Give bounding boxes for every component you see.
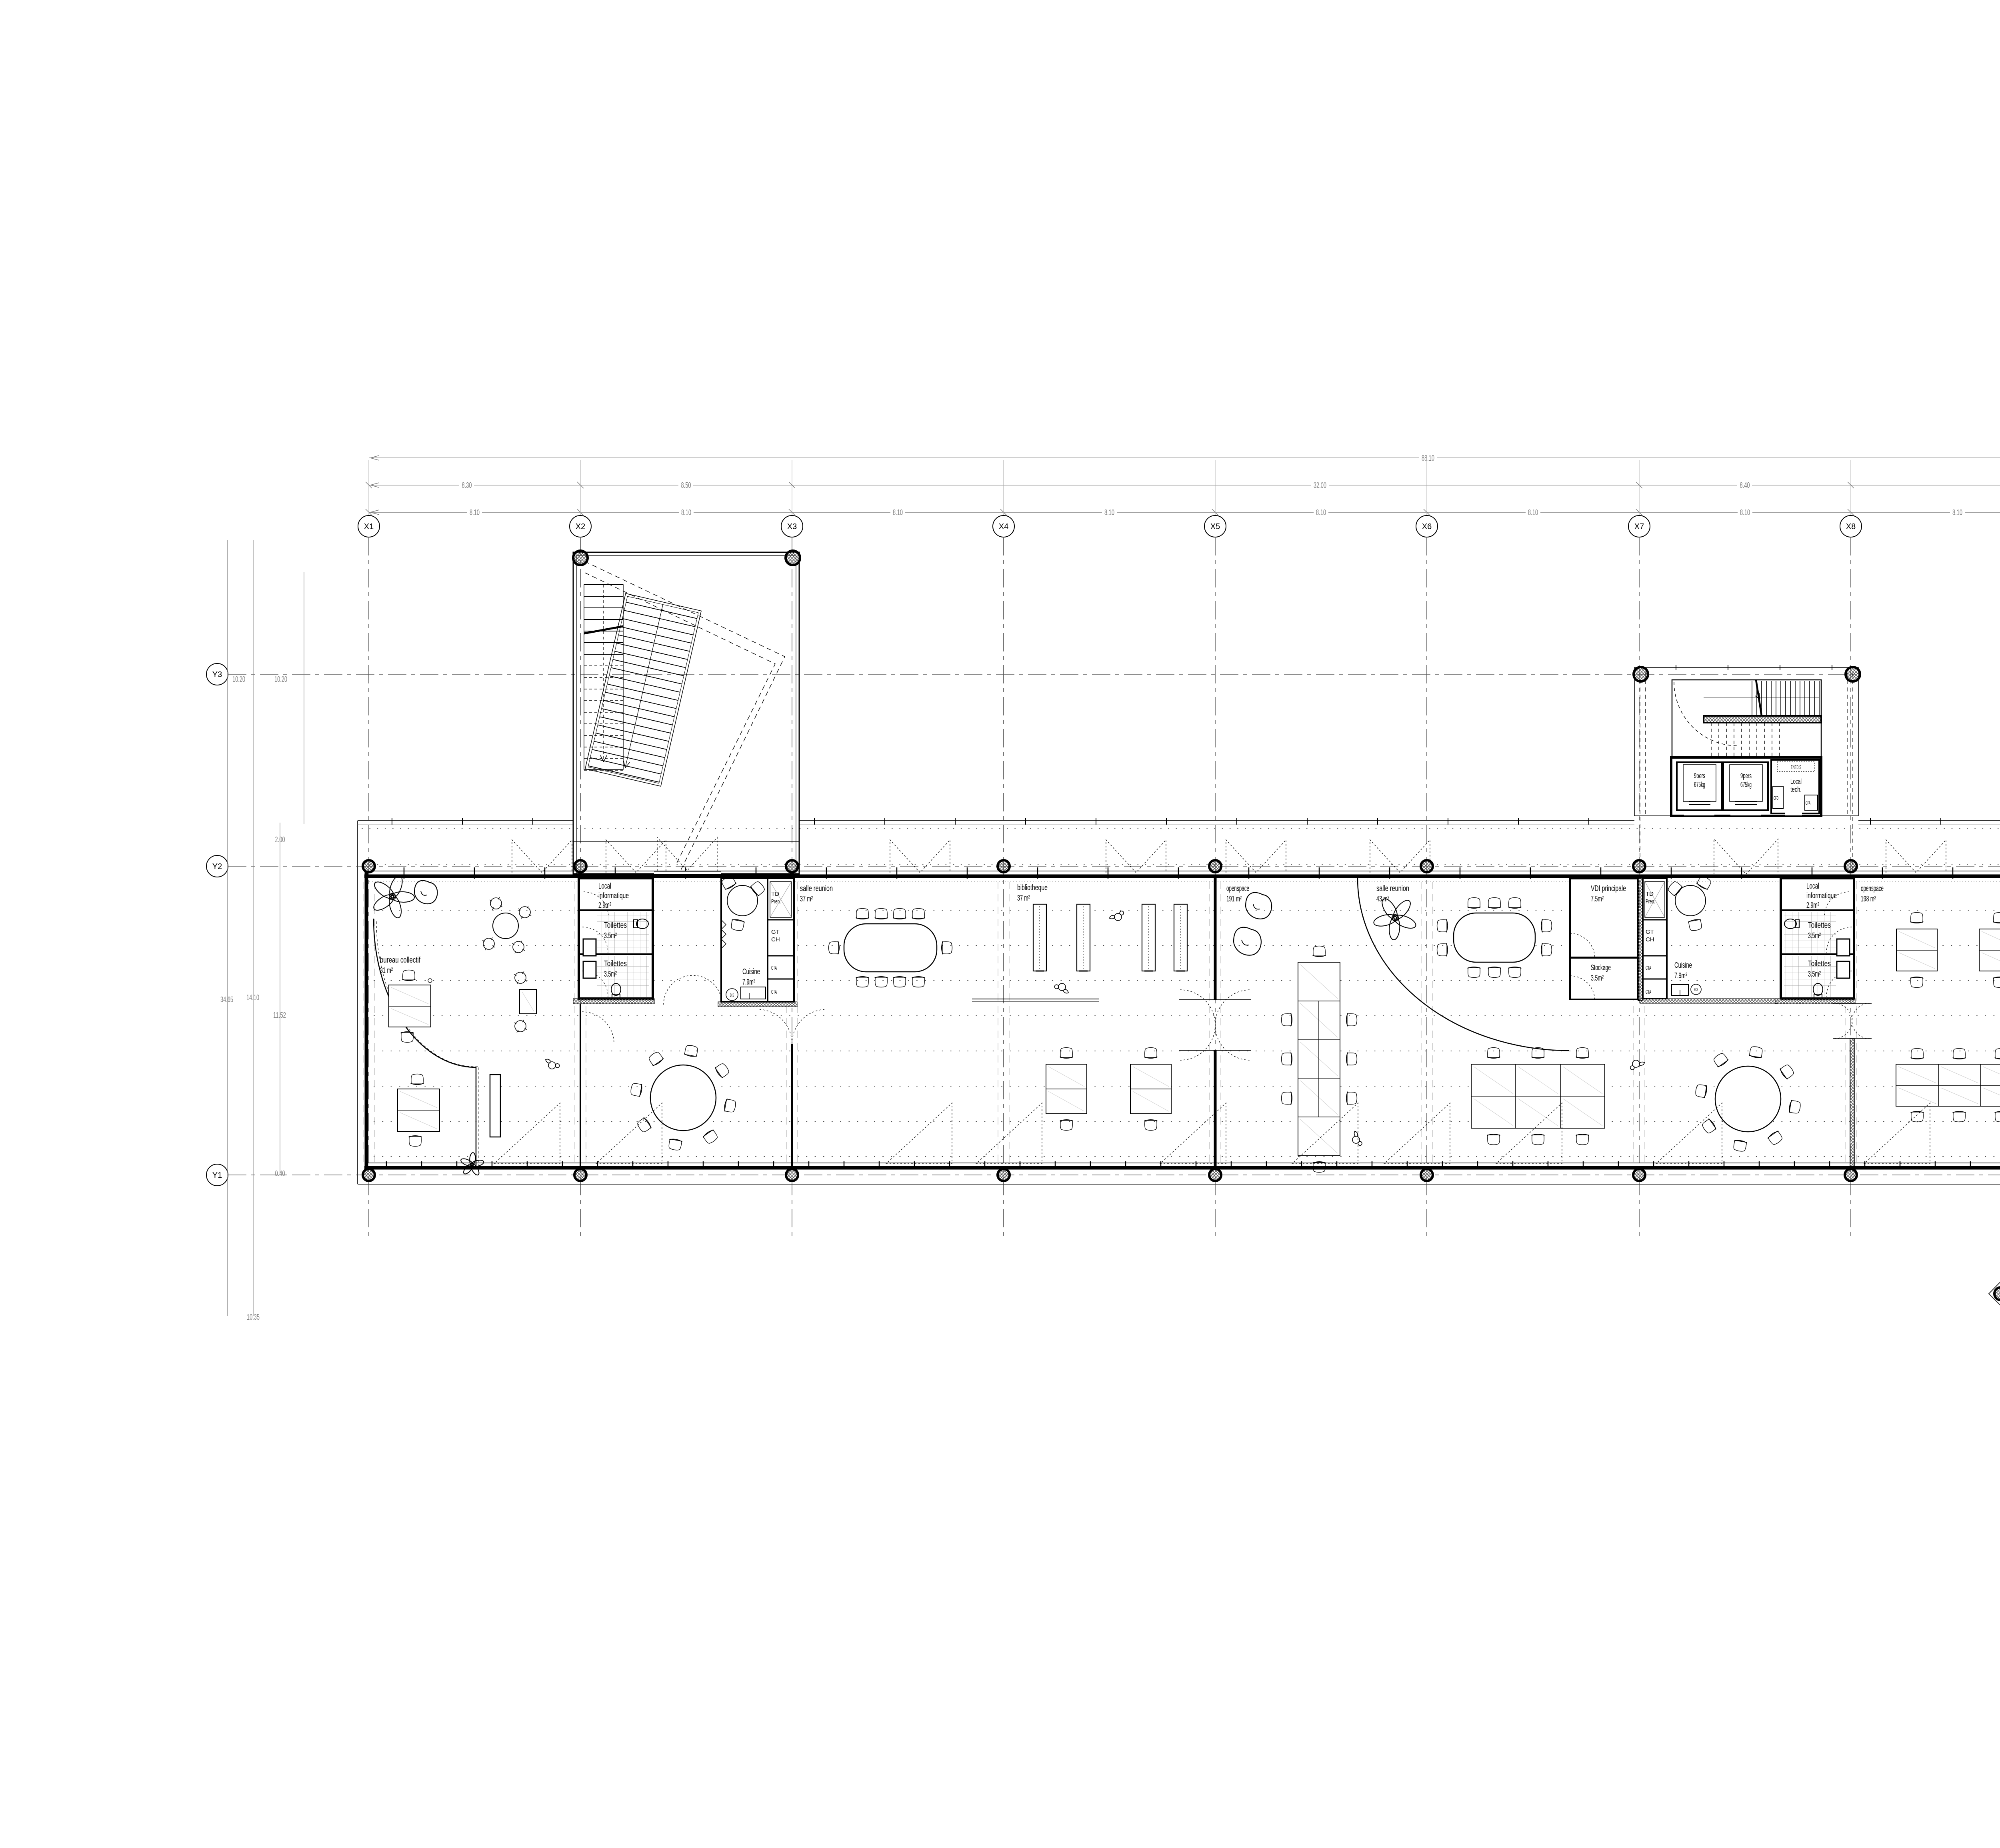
- svg-text:Local: Local: [1790, 777, 1802, 785]
- svg-text:Y1: Y1: [212, 1171, 222, 1180]
- svg-text:Stockage: Stockage: [1591, 963, 1611, 972]
- svg-text:8.10: 8.10: [681, 508, 691, 517]
- svg-text:Toilettes: Toilettes: [1808, 921, 1831, 930]
- svg-text:88.10: 88.10: [1422, 454, 1434, 463]
- svg-text:Pren.: Pren.: [1646, 898, 1655, 905]
- svg-text:CFA: CFA: [1806, 800, 1810, 806]
- svg-text:X2: X2: [576, 522, 585, 531]
- svg-text:32.00: 32.00: [1314, 481, 1326, 490]
- svg-text:Y3: Y3: [212, 670, 222, 679]
- svg-text:Toilettes: Toilettes: [1808, 959, 1831, 968]
- svg-text:8.10: 8.10: [1528, 508, 1538, 517]
- svg-text:10.20: 10.20: [274, 675, 287, 684]
- svg-text:8.50: 8.50: [681, 481, 691, 490]
- svg-text:TD: TD: [1646, 891, 1654, 897]
- svg-text:3.5m²: 3.5m²: [1808, 931, 1821, 940]
- svg-text:openspace: openspace: [1861, 884, 1884, 893]
- svg-text:CFO: CFO: [1774, 795, 1778, 801]
- svg-text:8.10: 8.10: [1316, 508, 1326, 517]
- svg-text:9pers: 9pers: [1694, 772, 1705, 780]
- svg-text:Pren.: Pren.: [771, 898, 781, 905]
- svg-text:37 m²: 37 m²: [800, 895, 813, 903]
- svg-text:675kg: 675kg: [1740, 781, 1752, 789]
- svg-text:X7: X7: [1634, 522, 1644, 531]
- svg-text:GT: GT: [1646, 929, 1654, 935]
- svg-text:14.10: 14.10: [246, 993, 259, 1002]
- svg-text:8.30: 8.30: [462, 481, 472, 490]
- svg-text:198 m²: 198 m²: [1861, 895, 1876, 903]
- svg-text:informatique: informatique: [598, 891, 629, 900]
- svg-text:34.65: 34.65: [220, 995, 233, 1004]
- svg-text:8.10: 8.10: [1740, 508, 1750, 517]
- svg-text:X6: X6: [1422, 522, 1432, 531]
- svg-text:X5: X5: [1210, 522, 1220, 531]
- svg-text:salle reunion: salle reunion: [1376, 884, 1409, 893]
- svg-text:ECS: ECS: [1694, 987, 1698, 992]
- svg-text:0.40: 0.40: [275, 1169, 285, 1178]
- svg-text:8.10: 8.10: [1952, 508, 1962, 517]
- svg-text:GT: GT: [771, 929, 780, 935]
- svg-text:X1: X1: [364, 522, 374, 531]
- svg-text:11.52: 11.52: [273, 1011, 286, 1020]
- svg-text:Local: Local: [1806, 882, 1819, 891]
- svg-text:openspace: openspace: [1226, 884, 1249, 893]
- svg-text:9pers: 9pers: [1740, 772, 1752, 780]
- svg-text:Cuisine: Cuisine: [1674, 961, 1692, 970]
- svg-text:8.10: 8.10: [1104, 508, 1114, 517]
- svg-text:CH: CH: [1646, 936, 1654, 943]
- svg-text:3.5m²: 3.5m²: [1591, 974, 1604, 983]
- svg-text:Y2: Y2: [212, 862, 222, 871]
- svg-text:TD: TD: [771, 891, 779, 897]
- svg-text:CTA: CTA: [771, 989, 777, 995]
- svg-text:X3: X3: [787, 522, 797, 531]
- svg-text:7.9m²: 7.9m²: [742, 978, 755, 987]
- svg-text:bureau collectif: bureau collectif: [380, 956, 420, 965]
- svg-text:2.9m²: 2.9m²: [1806, 901, 1819, 910]
- svg-text:CTA: CTA: [1646, 989, 1651, 995]
- svg-text:2.00: 2.00: [275, 835, 285, 844]
- svg-text:Toilettes: Toilettes: [604, 959, 627, 968]
- svg-text:informatique: informatique: [1806, 891, 1837, 900]
- svg-text:bibliotheque: bibliotheque: [1017, 883, 1048, 892]
- svg-text:ENEDIS: ENEDIS: [1791, 764, 1801, 770]
- svg-text:ECS: ECS: [730, 993, 734, 998]
- svg-text:X8: X8: [1846, 522, 1856, 531]
- svg-text:8.10: 8.10: [893, 508, 903, 517]
- svg-text:tech.: tech.: [1790, 785, 1802, 793]
- svg-text:Cuisine: Cuisine: [742, 967, 760, 976]
- svg-text:675kg: 675kg: [1694, 781, 1705, 789]
- svg-text:7.9m²: 7.9m²: [1674, 971, 1687, 980]
- svg-text:2.9m²: 2.9m²: [598, 901, 611, 910]
- svg-text:3.5m²: 3.5m²: [1808, 970, 1821, 979]
- svg-text:CH: CH: [771, 936, 780, 943]
- svg-text:3.5m²: 3.5m²: [604, 931, 617, 940]
- svg-text:10.20: 10.20: [232, 675, 245, 684]
- svg-text:8.40: 8.40: [1740, 481, 1750, 490]
- svg-text:salle reunion: salle reunion: [800, 884, 833, 893]
- svg-text:3.5m²: 3.5m²: [604, 970, 617, 979]
- svg-text:X4: X4: [999, 522, 1008, 531]
- svg-text:CTA: CTA: [1646, 965, 1651, 971]
- svg-text:Local: Local: [598, 882, 611, 891]
- svg-text:CTA: CTA: [771, 965, 777, 971]
- svg-text:Toilettes: Toilettes: [604, 921, 627, 930]
- svg-text:VDI principale: VDI principale: [1591, 884, 1626, 893]
- svg-text:10.35: 10.35: [247, 1313, 260, 1322]
- svg-text:8.10: 8.10: [470, 508, 480, 517]
- svg-text:7.5m²: 7.5m²: [1591, 895, 1604, 903]
- svg-text:31 m²: 31 m²: [380, 966, 393, 975]
- svg-text:37 m²: 37 m²: [1017, 894, 1030, 903]
- svg-text:191 m²: 191 m²: [1226, 895, 1242, 903]
